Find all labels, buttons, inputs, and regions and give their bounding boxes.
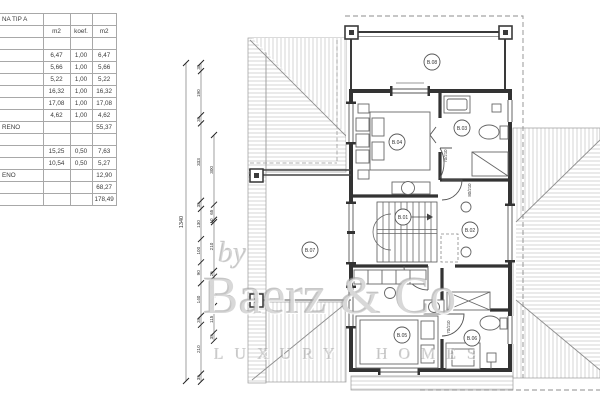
table-row: 68,27 xyxy=(0,182,116,194)
area-table: NA TIP A m2 koef. m2 6,471,006,475,661,0… xyxy=(0,13,117,206)
table-row: ENO12,90 xyxy=(0,170,116,182)
room-label-B.08: B.08 xyxy=(427,60,438,66)
dim-value: 130 xyxy=(196,220,201,228)
table-row xyxy=(0,38,116,50)
dim-value: 35 xyxy=(209,334,214,340)
door-size-label: 80/210 xyxy=(467,183,472,197)
dim-value: 36 xyxy=(209,299,214,305)
room-label-B.01: B.01 xyxy=(398,215,409,221)
door-size-label: 70/210 xyxy=(446,320,451,334)
dim-value: 25 xyxy=(209,271,214,277)
dim-value: 90 xyxy=(209,284,214,290)
table-row: 5,221,005,22 xyxy=(0,74,116,86)
dim-value: 90 xyxy=(196,270,201,276)
dim-value: 190 xyxy=(196,89,201,97)
dim-value: 35 xyxy=(196,116,201,122)
dim-value: 35 xyxy=(196,202,201,208)
dim-value-overall: 1340 xyxy=(179,216,185,228)
table-title: NA TIP A xyxy=(0,14,43,26)
table-row: RENO55,37 xyxy=(0,122,116,134)
floor-plan-page: 1340351903533335130100901403921035300651… xyxy=(0,0,600,400)
dim-value: 39 xyxy=(196,317,201,323)
col-m2: m2 xyxy=(43,26,70,38)
roof-right xyxy=(513,128,600,378)
col-m2-total: m2 xyxy=(92,26,116,38)
dim-value: 210 xyxy=(196,345,201,353)
dim-value: 35 xyxy=(196,375,201,381)
table-row: 16,321,0016,32 xyxy=(0,86,116,98)
room-label-B.05: B.05 xyxy=(397,333,408,339)
dim-value: 35 xyxy=(196,64,201,70)
table-row: 17,081,0017,08 xyxy=(0,98,116,110)
room-label-B.02: B.02 xyxy=(465,228,476,234)
dim-value: 100 xyxy=(196,246,201,254)
col-koef: koef. xyxy=(70,26,92,38)
dim-value: 65 xyxy=(209,209,214,215)
dim-value: 333 xyxy=(196,158,201,166)
room-label-B.03: B.03 xyxy=(457,126,468,132)
door-size-label: 70/210 xyxy=(443,149,448,163)
room-label-B.04: B.04 xyxy=(392,140,403,146)
table-row: 5,661,005,66 xyxy=(0,62,116,74)
table-row: 15,250,507,63 xyxy=(0,146,116,158)
room-label-B.06: B.06 xyxy=(467,336,478,342)
dim-value: 140 xyxy=(196,295,201,303)
dim-value: 115 xyxy=(209,315,214,323)
table-row: 6,471,006,47 xyxy=(0,50,116,62)
dimension-chains: 1340351903533335130100901403921035300651… xyxy=(179,60,217,385)
table-row xyxy=(0,134,116,146)
roof-left-edge-strip xyxy=(248,38,266,383)
dim-value: 210 xyxy=(209,242,214,250)
room-label-B.07: B.07 xyxy=(305,248,316,254)
table-row: 178,49 xyxy=(0,194,116,206)
table-row: 4,621,004,62 xyxy=(0,110,116,122)
table-row: 10,540,505,27 xyxy=(0,158,116,170)
roof-bottom-left xyxy=(252,302,346,382)
dim-value: 300 xyxy=(209,166,214,174)
roof-bottom-band xyxy=(351,376,513,390)
